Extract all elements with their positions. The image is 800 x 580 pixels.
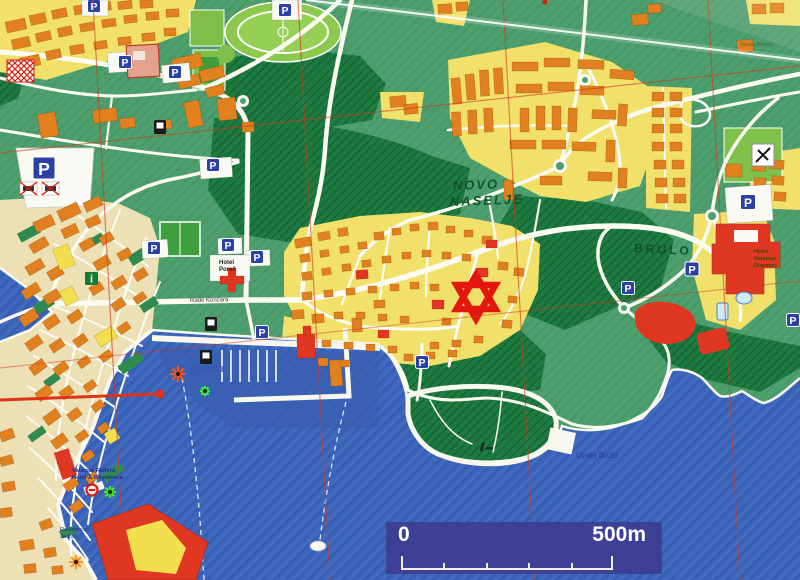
building [631,13,648,26]
building [334,312,343,319]
label-novo-naselje: NASELJE [450,191,524,209]
fuel-station-icon-window [203,353,210,359]
building [317,231,330,241]
route-endpoint [156,390,165,399]
scale-bar-tick [528,563,530,570]
building [19,539,35,551]
building [502,320,513,329]
label-uvala-brulo: Uvala Brulo [576,451,618,460]
building [378,314,387,321]
building [673,178,685,187]
building [512,62,538,71]
building [146,12,160,21]
building [404,354,413,361]
label-valamar-riviera: Hotel & Residence [72,475,124,481]
info-icon-letter: i [90,274,93,286]
building [484,108,494,132]
map-canvas: iPPPPPPPPPPPPPPPNOVONASELJEBRULOMarinaUv… [0,0,800,580]
hotel-building [378,330,389,338]
building [652,142,664,151]
islet [310,541,326,551]
scale-bar-zero: 0 [398,523,410,547]
parking-icon-letter: P [122,58,129,69]
building [358,242,368,250]
building [102,18,117,28]
city-map: iPPPPPPPPPPPPPPPNOVONASELJEBRULOMarinaUv… [0,0,800,580]
label-hotel-valamar: Diamant [754,263,777,269]
building [140,0,154,8]
building [772,176,785,186]
building [572,142,596,152]
building [1,481,15,492]
building [672,160,684,169]
building [468,110,478,134]
map-layers: iPPPPPPPPPPPPPPPNOVONASELJEBRULOMarinaUv… [0,0,800,580]
scale-bar-tick [486,563,488,570]
building [548,82,574,91]
hotel-building [297,334,315,358]
roundabout-center [582,77,588,83]
parking-icon-letter: P [210,161,217,172]
building [580,86,604,96]
hotel-building [486,240,497,248]
building [479,70,489,96]
building [382,256,391,264]
light-beacon-dot [108,490,112,494]
building [142,33,156,42]
roundabout-center [708,212,716,220]
building [617,104,628,127]
building [428,222,438,230]
scale-bar-tick [571,563,573,570]
roundabout-center [240,98,246,104]
scale-bar-max: 500m [592,523,646,547]
parking-icon-letter: P [151,244,158,255]
building [164,28,176,36]
building [390,284,399,291]
building [536,106,545,130]
beach-icon [486,447,493,450]
building [324,290,334,298]
sports-court [190,10,224,46]
parking-icon-letter: P [744,196,752,210]
building [552,106,561,130]
building [368,286,377,293]
parking-icon-letter: P [282,6,289,17]
building [464,230,473,237]
light-beacon-dot [176,372,180,376]
building [655,178,667,187]
parking-icon-letter: P [172,68,179,79]
building [442,252,451,259]
label-street: Vanija Antonci [740,42,774,48]
building [670,124,682,133]
building [648,4,662,14]
building [346,288,355,296]
building [410,282,419,289]
label-hotel-valamar: Valamar [754,256,777,262]
building [498,262,509,271]
parking-icon-letter: P [790,316,797,327]
parking-icon-letter: P [419,358,426,369]
label-marina: Marina [190,363,224,375]
building [410,224,419,232]
building [452,340,461,347]
building [726,164,742,177]
roundabout-center [556,162,564,170]
building [320,249,330,257]
hotel-courtyard [734,230,758,242]
park-tree [217,45,235,63]
building [166,9,179,17]
building [774,192,787,202]
building [322,267,332,275]
building [544,58,570,67]
building [654,160,666,169]
building [462,254,471,261]
building [24,563,37,573]
building [118,36,132,45]
building [362,260,372,268]
building [588,172,612,182]
parking-icon-letter: P [254,253,261,264]
building [337,227,348,236]
parking-icon-letter: P [625,284,632,295]
label-rade-koncara: Rade Končara [190,297,229,304]
building [37,112,59,139]
building [451,112,461,136]
building [670,142,682,151]
hotel-building [432,300,444,309]
building [340,245,350,253]
swimming-pool [736,292,752,304]
building [402,252,411,259]
building [430,284,439,291]
fuel-station-icon-window [208,320,215,326]
building [340,360,349,367]
building [119,117,135,129]
building [674,194,686,203]
label-hotel-porec: Hotel [219,260,234,266]
building [606,140,616,162]
building [493,68,503,94]
building [610,69,635,80]
swimming-pool [717,303,728,320]
building [520,108,529,132]
label-hotel-valamar: Hotel [754,249,769,255]
building [652,124,664,133]
building [299,253,310,263]
building [446,226,455,233]
building [52,565,64,574]
building [456,2,469,12]
building [342,264,352,272]
building [430,342,439,349]
building [516,84,542,93]
building [510,140,536,149]
building [301,271,312,280]
building [578,60,604,70]
building [670,92,682,101]
building [318,358,328,366]
scale-bar-baseline [401,568,613,571]
building [451,78,462,105]
building [217,97,237,121]
building [474,336,483,343]
scale-bar-ruler [401,556,613,570]
building [43,547,56,558]
light-beacon-dot [74,560,78,564]
building [0,507,13,518]
building [465,74,476,101]
label-novo-naselje: NOVO [453,176,500,193]
building [592,110,616,120]
building [670,108,682,117]
market-area [7,60,34,82]
label-valamar-riviera: Valamar Riviera [72,468,116,474]
building [344,342,353,349]
scale-bar-tick [611,556,613,570]
building [514,268,525,277]
building [392,228,401,236]
building [542,140,566,149]
building [400,316,409,323]
building [388,346,397,353]
building [124,14,138,23]
building [652,92,664,101]
building [422,250,431,257]
building [568,108,578,132]
hotel-building [220,276,244,284]
building [322,340,331,347]
scale-bar-tick [401,556,403,570]
hotel-building [303,326,311,335]
building [540,176,562,185]
building [374,231,385,240]
building [448,350,457,357]
building [312,314,325,324]
building [118,0,133,9]
parking-icon-letter: P [225,241,232,252]
building [292,310,305,320]
school-courtyard [133,51,145,60]
building [656,194,668,203]
scale-bar: 0 500m [386,522,662,574]
light-beacon-dot [203,389,207,393]
building [508,296,517,304]
scale-bar-tick [443,563,445,570]
label-hotel-porec: Poreč [219,267,236,273]
roundabout-center [621,305,627,311]
parking-icon-letter: P [259,328,266,339]
building [374,300,385,308]
parking-icon-letter: P [38,159,50,179]
building [356,312,365,319]
building [618,168,628,188]
building [652,108,664,117]
building [302,291,313,300]
label-residence-jadran: Jadran [60,534,78,540]
building [366,344,375,351]
fuel-station-icon-window [157,123,164,129]
hotel-building [356,270,369,280]
parking-icon-letter: P [688,264,696,276]
label-residence-jadran: Residence [60,527,87,533]
no-entry-icon-bar [89,489,95,491]
